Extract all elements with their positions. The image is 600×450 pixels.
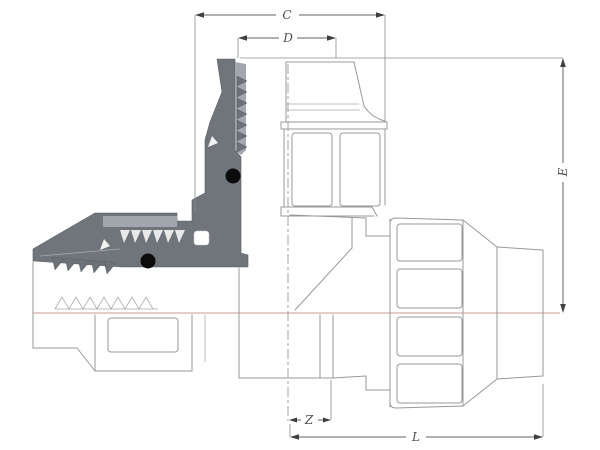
dim-label-e: E — [556, 167, 570, 177]
nut-rib-window — [397, 364, 462, 403]
section-notch — [194, 231, 209, 245]
nut-rib-window — [397, 317, 462, 356]
dim-label-l: L — [411, 430, 420, 444]
dimension-d: D — [238, 31, 336, 58]
dim-label-d: D — [282, 31, 293, 45]
nut-rib-window — [397, 224, 462, 261]
section-view — [33, 59, 248, 274]
dimension-e: E — [240, 58, 570, 313]
dim-label-z: Z — [304, 413, 314, 427]
body-chamfer-edge — [295, 248, 352, 310]
nut-rib-window — [397, 269, 462, 308]
left-nut-rib-window — [108, 318, 178, 352]
branch-rib-window — [292, 133, 332, 206]
dimension-z: Z — [289, 380, 331, 427]
oring-branch — [226, 169, 241, 184]
branch-rib-window — [340, 133, 380, 206]
section-body — [33, 59, 248, 267]
technical-drawing: C D E Z L — [0, 0, 600, 450]
dim-label-c: C — [282, 8, 291, 22]
drawing-canvas: C D E Z L — [0, 0, 600, 450]
oring-arm — [141, 254, 156, 269]
barbed-insert-outline — [55, 297, 153, 309]
dimension-l: L — [290, 384, 543, 444]
